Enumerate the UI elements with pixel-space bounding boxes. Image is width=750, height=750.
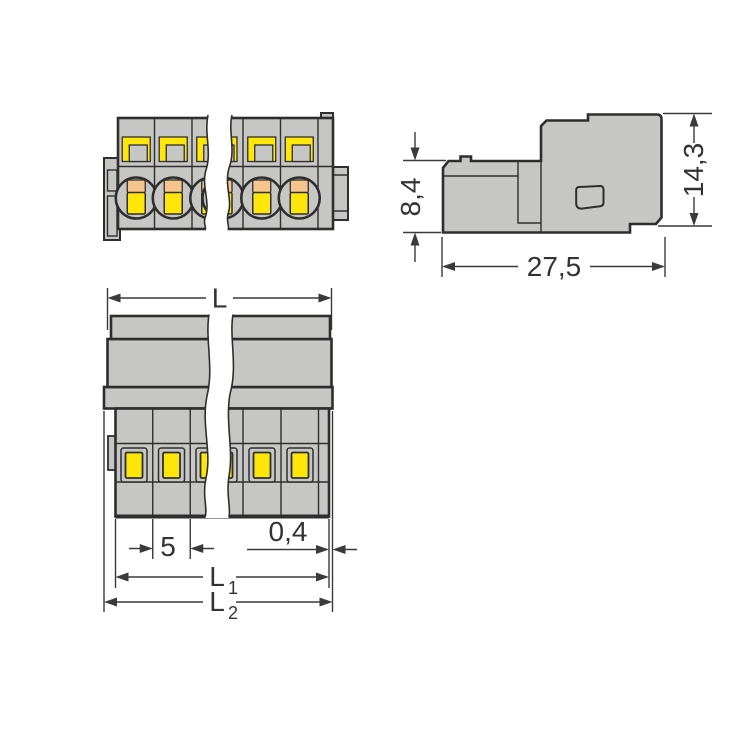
dim-height-lower: 8,4 bbox=[395, 132, 446, 262]
bottom-view: L 5 0,4 bbox=[104, 283, 357, 624]
contact-unit bbox=[287, 448, 313, 482]
arrowheads bbox=[316, 545, 346, 554]
dim-label-0-4: 0,4 bbox=[269, 516, 308, 547]
dim-label-5: 5 bbox=[160, 531, 176, 562]
front-view bbox=[104, 113, 348, 240]
dim-l2: L 2 bbox=[104, 586, 333, 623]
contact-unit bbox=[249, 448, 275, 482]
side-profile bbox=[443, 115, 662, 233]
contact-unit bbox=[121, 448, 147, 482]
dim-height-overall: 14,3 bbox=[658, 114, 712, 227]
technical-drawing-canvas: 8,4 14,3 27,5 L bbox=[0, 0, 750, 750]
contact-unit bbox=[159, 448, 185, 482]
dim-label-8-4: 8,4 bbox=[395, 178, 426, 217]
dim-label-l2: L bbox=[209, 586, 225, 617]
dim-label-l1-subscript: 1 bbox=[228, 578, 238, 598]
dim-label-27-5: 27,5 bbox=[527, 251, 582, 282]
dim-label-l2-subscript: 2 bbox=[228, 603, 238, 623]
technical-drawing-page: 8,4 14,3 27,5 L bbox=[0, 0, 750, 750]
test-slot-opening bbox=[576, 186, 603, 209]
side-view: 8,4 14,3 27,5 bbox=[395, 114, 712, 283]
dim-label-14-3: 14,3 bbox=[678, 143, 709, 198]
latch-detail bbox=[108, 170, 118, 191]
dim-depth: 27,5 bbox=[442, 237, 665, 282]
dim-label-L: L bbox=[212, 283, 228, 314]
dim-pitch: 5 bbox=[129, 519, 214, 562]
